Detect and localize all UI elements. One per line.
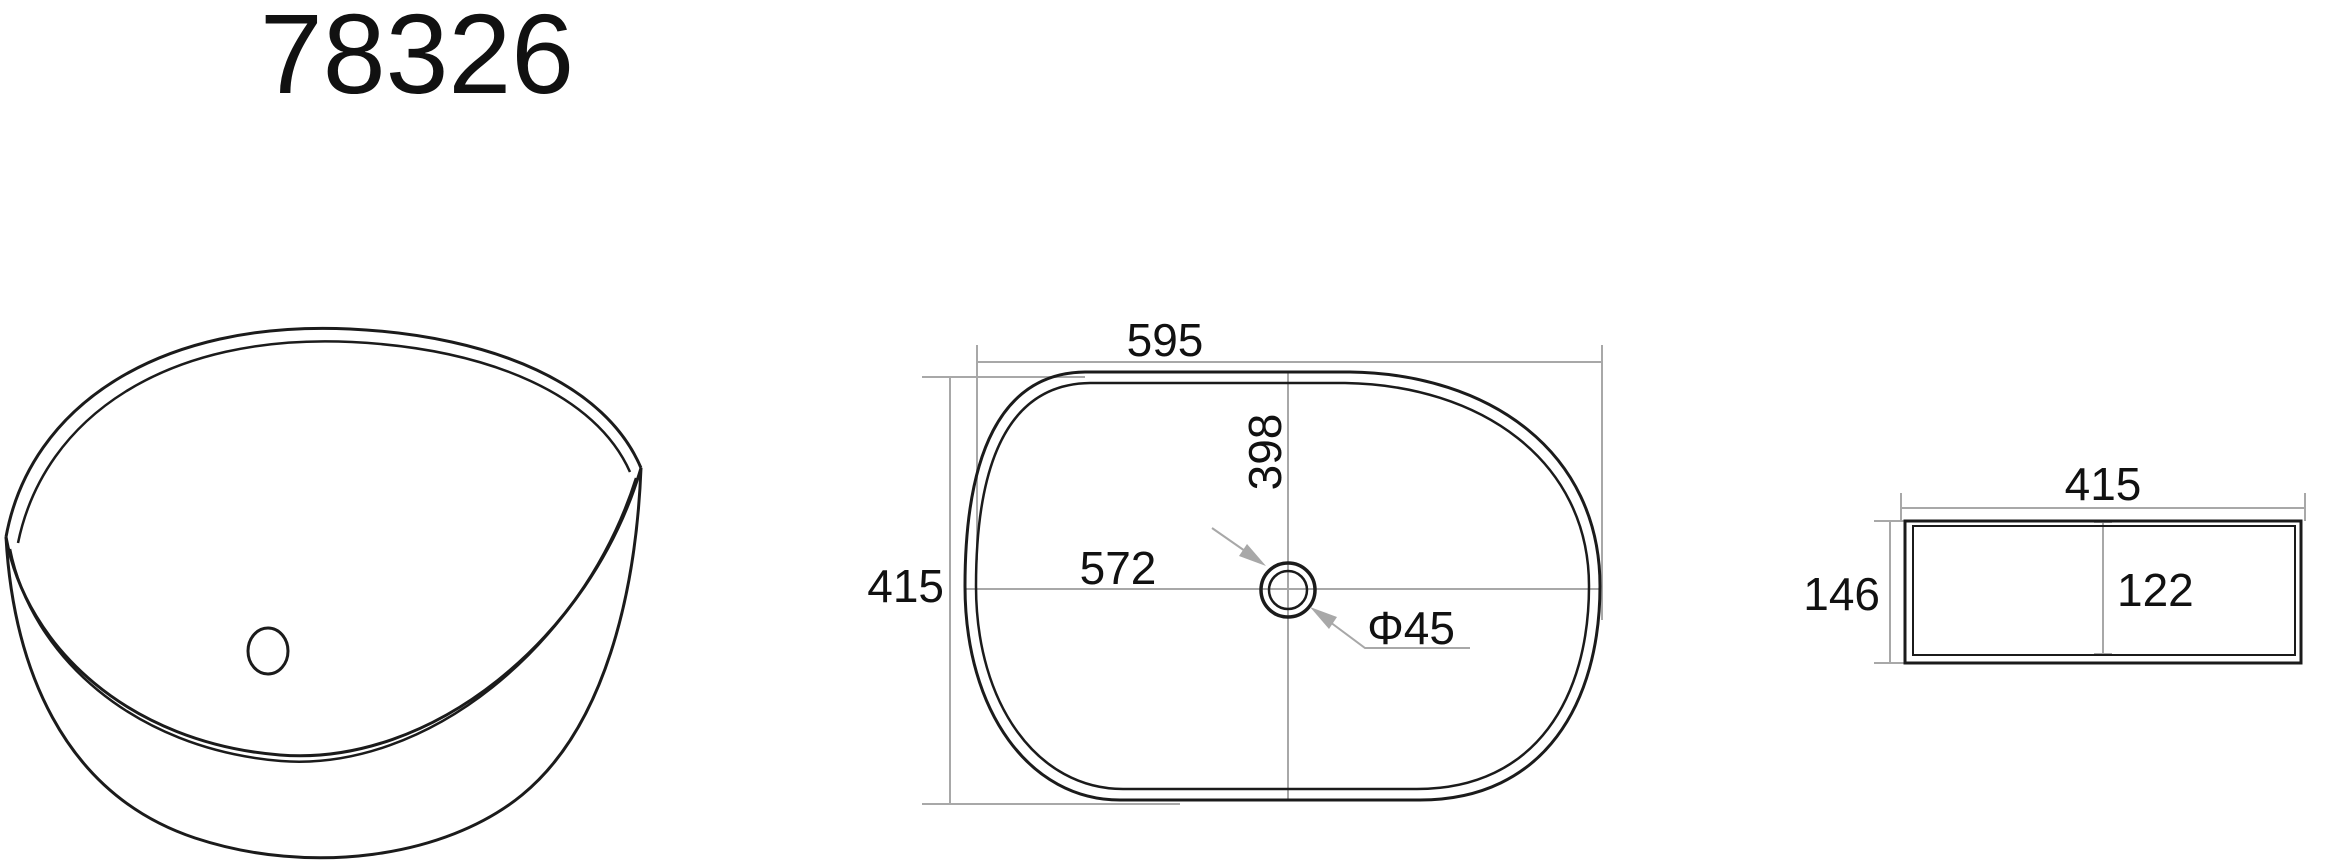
dim-label-overall-width: 595 — [1127, 314, 1204, 366]
drawing-sheet: 78326 — [0, 0, 2344, 864]
dim-label-basin-width: 398 — [1239, 414, 1291, 491]
basin-body-outline — [6, 468, 641, 858]
dim-label-overall-depth: 415 — [867, 560, 944, 612]
rim-outer-bottom-edge — [6, 468, 641, 756]
perspective-view — [6, 328, 641, 857]
side-view: 415 146 122 — [1803, 458, 2305, 663]
drain-leader-line-upper — [1212, 528, 1245, 551]
rim-inner-bottom-edge — [10, 478, 636, 762]
dim-label-side-height: 146 — [1803, 568, 1880, 620]
drain-leader-arrowhead-lower — [1310, 607, 1337, 629]
drain-hole — [248, 628, 288, 674]
rim-outer-top-edge — [6, 328, 641, 537]
top-view: 595 415 398 572 Φ45 — [867, 314, 1602, 805]
model-number: 78326 — [260, 0, 574, 117]
dim-label-basin-depth: 122 — [2117, 564, 2194, 616]
dim-label-basin-length: 572 — [1080, 542, 1157, 594]
dim-label-drain-diameter: Φ45 — [1367, 602, 1455, 654]
drain-leader-arrowhead-upper — [1239, 544, 1266, 566]
dim-label-side-width: 415 — [2065, 458, 2142, 510]
technical-drawing: 78326 — [0, 0, 2344, 864]
